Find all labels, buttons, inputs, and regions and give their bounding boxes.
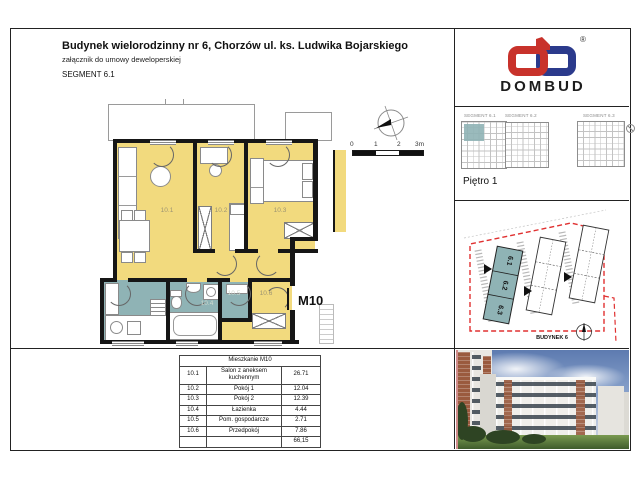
wall [104,278,110,282]
table-header-row: Mieszkanie M10 [180,356,321,367]
hall-wardrobe [252,313,286,329]
room-area: 4.44 [282,405,321,416]
apartment-label: M10 [298,293,323,308]
wall [235,249,258,253]
table-row: 10.5Pom. gospodarcze2.71 [180,416,321,427]
door-arc [150,143,174,167]
dimension-tick [183,99,184,105]
bush [522,434,546,444]
segment-label: SEGMENT 6.1 [62,70,115,79]
room-number: 10.2 [180,384,207,395]
bush [486,430,520,444]
room-label-10-6: 10.6 [260,290,273,297]
drawing-sheet: Budynek wielorodzinny nr 6, Chorzów ul. … [0,0,640,480]
neighbour-apartment-slice [333,150,346,232]
room-name: Pokój 1 [207,384,282,395]
room-name: Łazienka [207,405,282,416]
room-area: 26.71 [282,366,321,384]
table-row: 10.3Pokój 212.39 [180,395,321,406]
wall [128,278,187,282]
dimension-tick [165,99,166,105]
room-number: 10.1 [180,366,207,384]
wall [166,282,170,340]
scale-bar: 0 1 2 3m [352,141,424,157]
room-number: 10.3 [180,395,207,406]
wall [290,237,318,241]
registered-mark: ® [580,35,586,44]
wall [313,139,318,241]
door-arc [266,143,290,167]
wardrobe [198,206,212,252]
brick-facade [576,379,585,441]
wall [244,141,248,253]
overview-segment-6-2-label: SEGMENT 6.2 [505,113,537,118]
page-title: Budynek wielorodzinny nr 6, Chorzów ul. … [62,40,408,52]
overview-segment-6-3-label: SEGMENT 6.3 [583,113,615,118]
room-name: Salon z aneksem kuchennym [207,366,282,384]
mini-plan-segment-6-2 [505,122,549,168]
dombud-logo-icon [506,36,578,76]
table-row: 10.2Pokój 112.04 [180,384,321,395]
total-area-value: 66,15 [282,437,321,448]
wall [193,249,215,253]
room-name: Pom. gospodarcze [207,416,282,427]
door-arc [208,143,232,167]
chair [134,252,146,263]
table-title: Mieszkanie M10 [180,356,321,367]
pillow [302,181,313,198]
toilet-bowl [171,296,182,309]
room-name: Przedpokój [207,426,282,437]
door-arc [256,252,280,276]
building-6-highlighted: 6.1 6.2 6.3 [483,246,523,324]
door-arc [107,282,131,306]
total-empty-cell [180,437,207,448]
floor-label: Piętro 1 [463,176,497,187]
scale-3m: 3m [415,141,424,148]
room-name: Pokój 2 [207,395,282,406]
page-subtitle: załącznik do umowy deweloperskiej [62,55,181,64]
dining-table [119,220,150,252]
compass-icon [372,104,410,142]
roof-parapet [496,377,596,380]
site-plan: 6.1 6.2 6.3 BUDYNEK 6 [456,200,630,348]
room-area: 2.71 [282,416,321,427]
round-table [150,166,171,187]
room-number: 10.4 [180,405,207,416]
scale-2: 2 [397,141,401,148]
mini-plan-segment-6-3 [577,121,625,167]
chair [121,252,133,263]
staircase [319,304,334,344]
window [176,341,198,346]
room-label-10-4: 10.4 [201,300,214,307]
kitchen-appliance [150,299,166,316]
room-label-10-2: 10.2 [215,207,228,214]
pillow [230,204,245,215]
scale-1: 1 [374,141,378,148]
balcony-secondary [285,112,332,141]
logo-section-divider [454,106,629,107]
area-table: Mieszkanie M10 10.1Salon z aneksem kuche… [179,355,321,448]
wall [218,318,252,322]
building-render [456,350,629,449]
photo-edge-line [456,350,458,449]
building-neighbour-2 [569,225,609,303]
bathtub-inner [173,315,217,336]
total-empty-cell [207,437,282,448]
room-label-10-5: 10.5 [228,290,241,297]
wall [218,282,222,340]
table-row: 10.4Łazienka4.44 [180,405,321,416]
pillow [302,163,313,180]
area-table-body: Mieszkanie M10 10.1Salon z aneksem kuche… [180,356,321,448]
building-far [624,392,629,440]
wall [290,310,295,344]
table-total-row: 66,15 [180,437,321,448]
table-row: 10.6Przedpokój7.86 [180,426,321,437]
building-caption: BUDYNEK 6 [536,335,568,341]
overview-segment-6-1-label: SEGMENT 6.1 [464,113,496,118]
room-area: 7.86 [282,426,321,437]
wall [113,139,117,282]
room-number: 10.5 [180,416,207,427]
kitchen-sink [110,321,123,334]
wall [248,278,295,282]
siteplan-compass-icon [577,323,592,341]
cooktop [127,321,141,335]
highlighted-unit [464,124,484,141]
scale-0: 0 [350,141,354,148]
window [112,341,144,346]
wall [193,141,197,253]
mini-compass-icon [626,124,635,133]
building-neighbour-1 [526,237,566,315]
wall [100,278,104,344]
wall [278,249,318,253]
room-area: 12.04 [282,384,321,395]
scale-bar-rule [352,150,424,156]
wardrobe [250,158,264,204]
building-right [598,386,624,440]
room-label-10-1: 10.1 [161,207,174,214]
window [254,341,282,346]
door-arc [213,252,237,276]
brand-name: DOMBUD [500,78,586,95]
entrance-door-leaf [287,288,289,310]
room-label-10-3: 10.3 [274,207,287,214]
table-row: 10.1Salon z aneksem kuchennym26.71 [180,366,321,384]
balcony-main [108,104,255,141]
room-area: 12.39 [282,395,321,406]
room-number: 10.6 [180,426,207,437]
